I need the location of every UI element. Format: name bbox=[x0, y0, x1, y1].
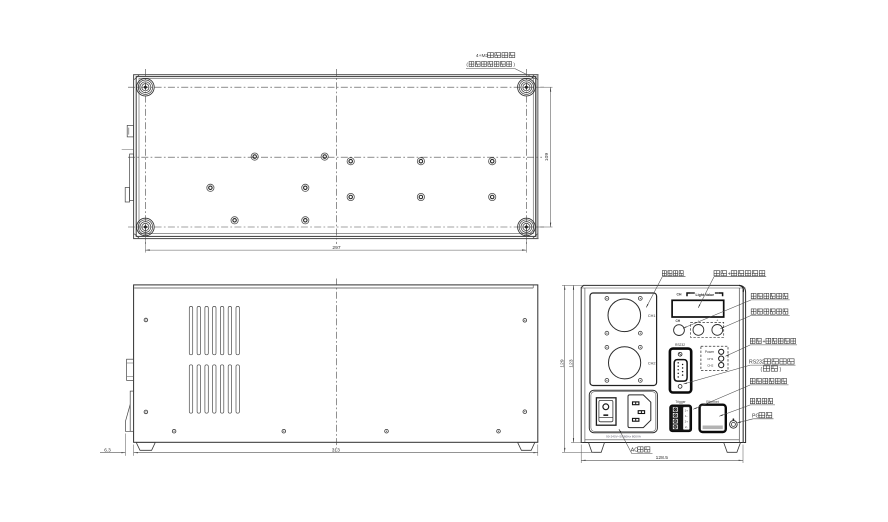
svg-text:128.5: 128.5 bbox=[656, 455, 669, 461]
svg-text:2-: 2- bbox=[685, 425, 688, 429]
svg-text:+: + bbox=[716, 319, 718, 323]
svg-text:109: 109 bbox=[544, 153, 550, 161]
svg-text:CH: CH bbox=[677, 292, 682, 296]
svg-text:Power: Power bbox=[705, 350, 715, 354]
svg-text:AC: AC bbox=[631, 448, 638, 454]
svg-text:129: 129 bbox=[560, 359, 566, 367]
svg-text:CH2: CH2 bbox=[648, 362, 656, 366]
svg-text:CH2: CH2 bbox=[707, 363, 713, 367]
svg-text:CH: CH bbox=[675, 319, 680, 323]
svg-text:RS232: RS232 bbox=[675, 343, 685, 347]
svg-text:297: 297 bbox=[332, 245, 340, 251]
svg-text:1-: 1- bbox=[685, 414, 688, 418]
svg-text:PG: PG bbox=[752, 413, 760, 419]
svg-text:313: 313 bbox=[332, 447, 340, 453]
svg-text:1+: 1+ bbox=[685, 408, 689, 412]
svg-text:RS232: RS232 bbox=[749, 360, 765, 366]
svg-text:4+M3: 4+M3 bbox=[476, 53, 489, 59]
svg-text:CH1: CH1 bbox=[707, 357, 713, 361]
svg-text:2+: 2+ bbox=[685, 419, 689, 423]
svg-text:123: 123 bbox=[568, 359, 574, 367]
svg-text:Trigger: Trigger bbox=[675, 400, 686, 404]
svg-text:(: ( bbox=[761, 367, 763, 373]
svg-text:CH1: CH1 bbox=[648, 314, 656, 318]
svg-text:6.3: 6.3 bbox=[104, 447, 111, 452]
svg-text:+: + bbox=[762, 339, 765, 345]
svg-text:): ) bbox=[780, 367, 782, 373]
